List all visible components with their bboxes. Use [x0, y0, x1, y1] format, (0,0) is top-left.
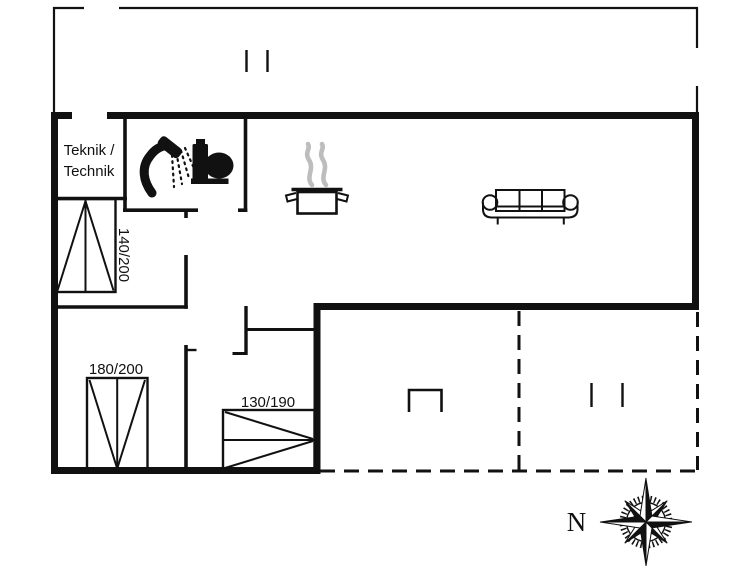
toilet-icon — [191, 139, 234, 184]
bed-size-label-140: 140/200 — [116, 222, 132, 288]
steam-icon — [307, 144, 326, 185]
bed-140-symbol — [56, 199, 116, 292]
cooking-pot-icon — [286, 190, 348, 214]
terrace-dashed-outline — [320, 311, 698, 471]
compass-north-label: N — [561, 507, 592, 537]
terrace-marking — [409, 390, 442, 412]
bed-size-label-180: 180/200 — [83, 361, 149, 378]
technical-room-label-line2: Technik — [56, 163, 122, 180]
technical-room-label-line1: Teknik / — [56, 142, 122, 159]
compass-rose-icon — [600, 478, 692, 566]
bed-180-symbol — [87, 378, 148, 470]
window-ticks-top — [247, 50, 268, 72]
bed-130-symbol — [223, 410, 315, 470]
floor-plan-drawing — [0, 0, 755, 566]
window-ticks-bottom — [592, 383, 623, 407]
closet-walls — [233, 306, 318, 355]
floor-plan: Teknik / Technik 140/200 180/200 130/190… — [0, 0, 755, 566]
sofa-icon — [483, 190, 578, 225]
shower-icon — [144, 135, 196, 193]
bed-size-label-130: 130/190 — [235, 394, 301, 411]
terrace-railing-outline — [53, 7, 698, 113]
